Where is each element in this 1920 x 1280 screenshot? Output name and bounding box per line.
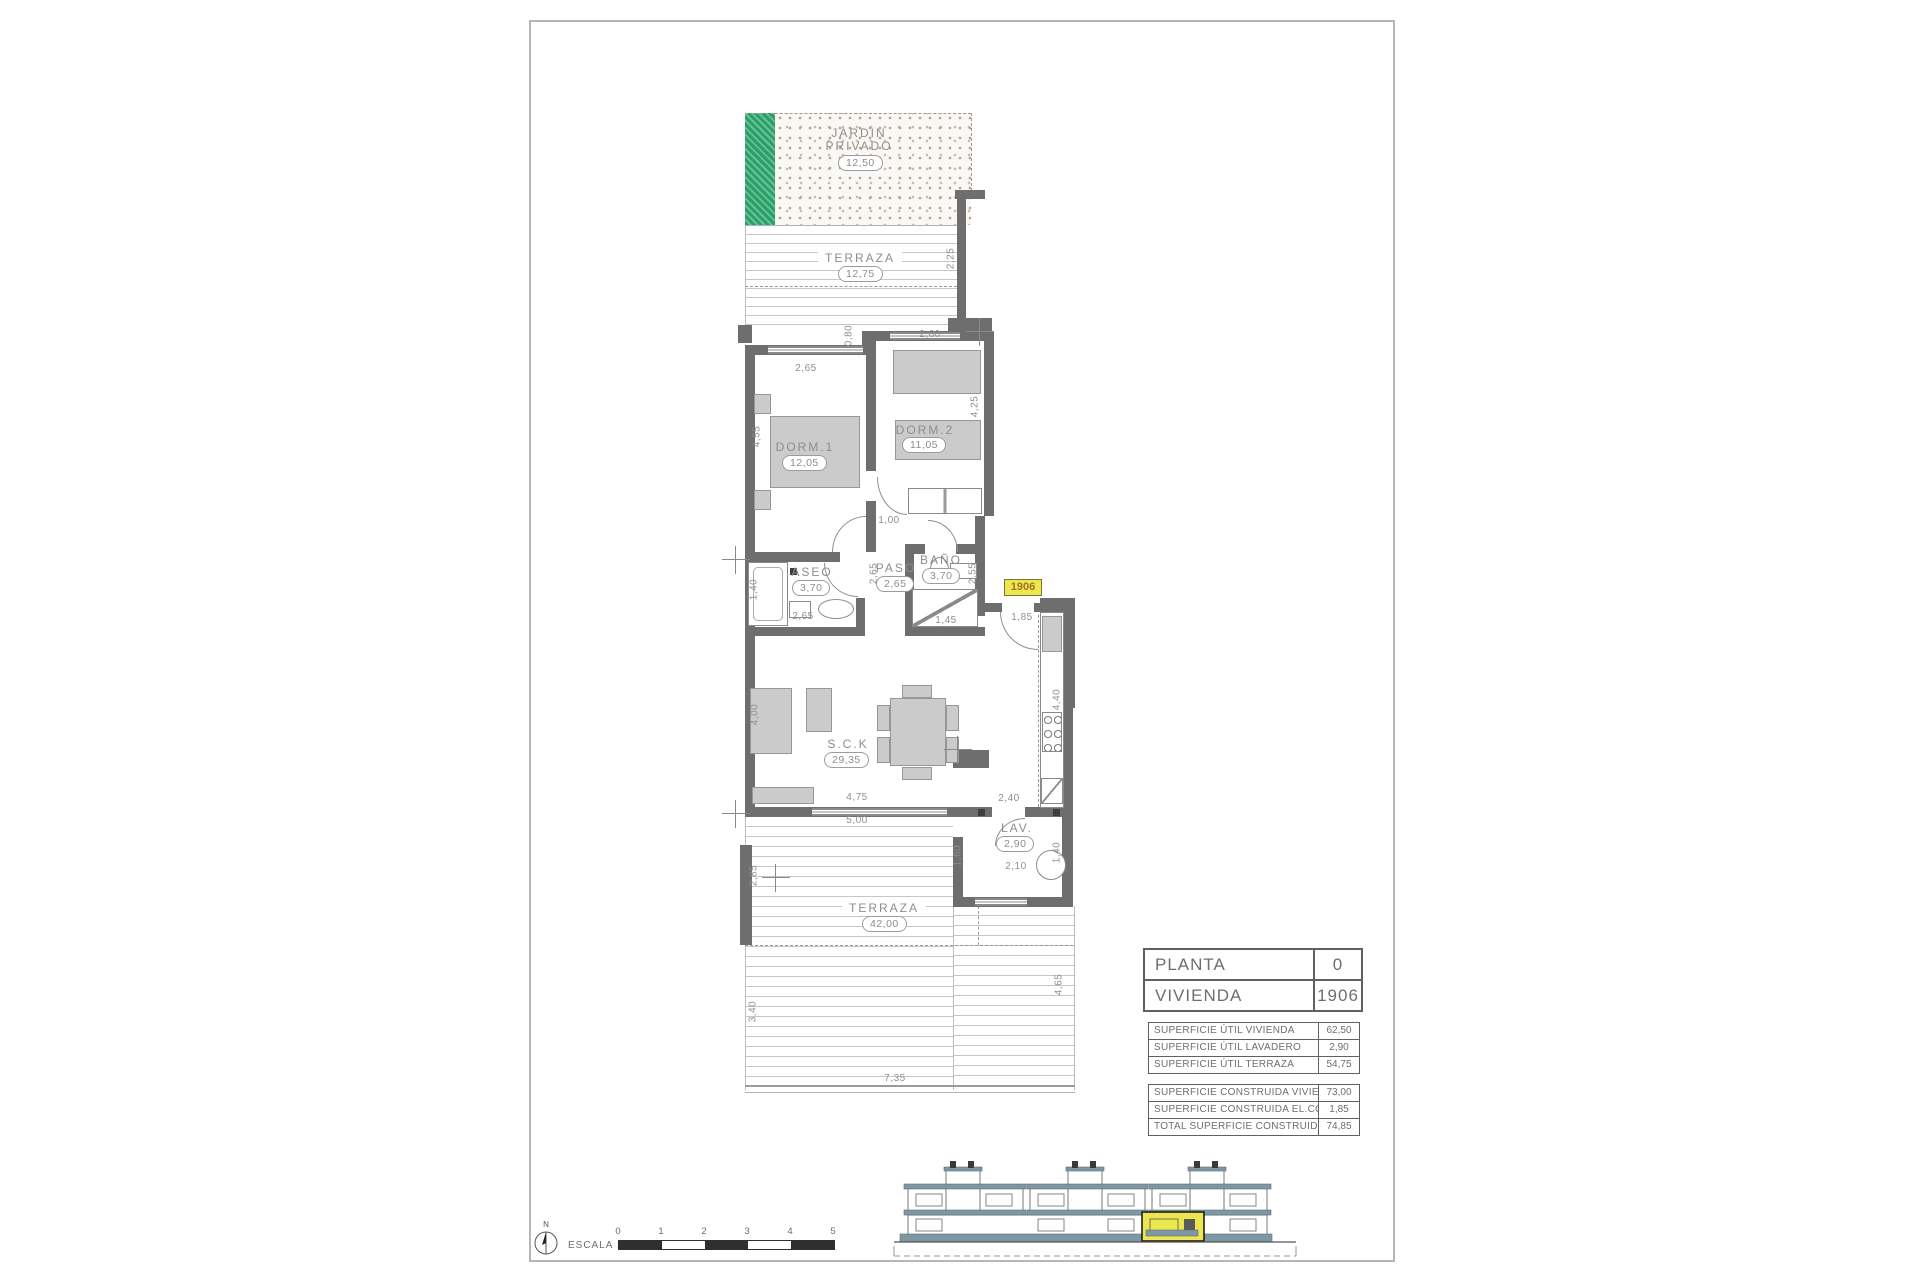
scale-tick: 4 (785, 1226, 795, 1237)
wall-segment (745, 552, 840, 562)
socket-symbol (1053, 809, 1060, 816)
nightstand (754, 490, 771, 510)
scale-segment (748, 1241, 791, 1249)
wall-segment (905, 627, 985, 636)
scale-segment (619, 1241, 662, 1249)
dimension: 2,65 (791, 363, 821, 374)
chair (877, 705, 890, 731)
wall-segment (745, 627, 865, 636)
table-row: SUPERFICIE CONSTRUIDA VIVIENDA 73,00 (1149, 1085, 1359, 1101)
tv-unit (806, 688, 832, 732)
table-cell-label: SUPERFICIE ÚTIL TERRAZA (1149, 1057, 1318, 1073)
dimension: 1,40 (1052, 838, 1063, 868)
table-cell-value: 0 (1313, 950, 1361, 979)
dimension: 3,40 (748, 997, 759, 1027)
garden-boundary-right (971, 113, 972, 191)
section-mark (762, 864, 790, 892)
dimension: 1,00 (874, 515, 904, 526)
chair (946, 705, 959, 731)
dimension: 1,45 (931, 615, 961, 626)
scale-bar (618, 1240, 835, 1250)
table-cell-value: 74,85 (1318, 1119, 1359, 1135)
superficie-construida-table: SUPERFICIE CONSTRUIDA VIVIENDA 73,00 SUP… (1148, 1084, 1360, 1136)
dimension: 4,75 (842, 792, 872, 803)
table-cell-label: SUPERFICIE CONSTRUIDA EL.COMUNES (1149, 1102, 1318, 1118)
bottom-terrace-deck-a (745, 817, 954, 1090)
garden-boundary-top (745, 113, 971, 114)
table-row: VIVIENDA 1906 (1145, 979, 1361, 1010)
table-cell-label: TOTAL SUPERFICIE CONSTRUIDA (1149, 1119, 1318, 1135)
room-label-lav: LAV. (994, 821, 1040, 835)
dimension: 2,65 (869, 559, 880, 589)
chair (902, 685, 932, 698)
sliding-door-window (812, 808, 947, 816)
room-label-aseo: ASEO (785, 565, 839, 579)
table-cell-value: 54,75 (1318, 1057, 1359, 1073)
dimension: 4,65 (1054, 970, 1065, 1000)
table-row: SUPERFICIE ÚTIL LAVADERO 2,90 (1149, 1039, 1359, 1056)
top-terrace-cover-line (745, 286, 957, 287)
unit-number-tag: 1906 (1004, 579, 1042, 596)
room-label-dorm1: DORM.1 (768, 440, 842, 454)
sideboard (752, 787, 814, 804)
dimension: 1,40 (749, 575, 760, 605)
room-label-bano: BAÑO (914, 553, 968, 567)
area-box-aseo: 3,70 (792, 580, 830, 596)
table-cell-value: 73,00 (1318, 1085, 1359, 1101)
chair (902, 767, 932, 780)
area-box-jardin: 12,50 (838, 155, 883, 171)
chair (877, 737, 890, 763)
dimension: 4,55 (752, 422, 763, 452)
socket-symbol (978, 809, 985, 816)
table-cell-value: 1,85 (1318, 1102, 1359, 1118)
area-box-sck: 29,35 (824, 752, 869, 768)
bed-dorm2 (893, 350, 981, 394)
dimension: 4,25 (970, 392, 981, 422)
fridge (1042, 616, 1062, 652)
dimension: 2,10 (1001, 861, 1031, 872)
dimension: 2,65 (788, 611, 818, 622)
pergola-line (745, 945, 1073, 946)
garden-hedge-hatch (745, 113, 775, 225)
north-arrow-icon: N (531, 1218, 561, 1258)
room-label-jardin: JARDIN (822, 126, 896, 140)
scale-tick: 0 (613, 1226, 623, 1237)
wall-segment (738, 325, 752, 343)
scale-tick: 3 (742, 1226, 752, 1237)
building-elevation (890, 1158, 1300, 1262)
table-cell-label: VIVIENDA (1145, 981, 1313, 1010)
dimension: 1,60 (953, 841, 964, 871)
section-mark (722, 546, 750, 574)
table-cell-value: 2,90 (1318, 1040, 1359, 1056)
area-box-terraza-top: 12,75 (838, 266, 883, 282)
room-label-sck: S.C.K (818, 737, 878, 751)
table-cell-label: SUPERFICIE ÚTIL LAVADERO (1149, 1040, 1318, 1056)
area-box-terraza-bottom: 42,00 (862, 916, 907, 932)
section-mark (966, 318, 994, 346)
wall-segment (984, 331, 994, 516)
dimension: 2,25 (946, 244, 957, 274)
kitchen-sink (1041, 778, 1063, 804)
planta-vivienda-table: PLANTA 0 VIVIENDA 1906 (1143, 948, 1363, 1012)
room-label-terraza-top: TERRAZA (818, 251, 902, 265)
highlighted-unit-elevation (1142, 1212, 1204, 1241)
svg-text:N: N (543, 1220, 549, 1229)
floor-plan: JARDIN PRIVADO 12,50 TERRAZA 12,75 DORM.… (0, 0, 1920, 1280)
table-cell-value: 1906 (1313, 981, 1361, 1010)
dimension: 4,00 (750, 700, 761, 730)
dimension: 7,35 (880, 1073, 910, 1084)
area-box-lav: 2,90 (996, 836, 1034, 852)
table-row: TOTAL SUPERFICIE CONSTRUIDA 74,85 (1149, 1118, 1359, 1135)
area-box-paso: 2,65 (876, 576, 914, 592)
room-label-dorm2: DORM.2 (888, 423, 962, 437)
wall-segment (953, 807, 992, 817)
scale-segment (791, 1241, 834, 1249)
dimension: 4,40 (1052, 685, 1063, 715)
dimension: 2,60 (915, 329, 945, 340)
closet-dorm2 (908, 488, 982, 514)
deck-edge-line-1 (745, 1085, 1075, 1087)
table-row: SUPERFICIE ÚTIL VIVIENDA 62,50 (1149, 1023, 1359, 1039)
nightstand (754, 394, 771, 414)
table-cell-label: SUPERFICIE CONSTRUIDA VIVIENDA (1149, 1085, 1318, 1101)
room-label-terraza-bottom: TERRAZA (842, 901, 926, 915)
table-row: PLANTA 0 (1145, 950, 1361, 979)
dining-table (890, 698, 946, 766)
window (975, 898, 1027, 906)
dimension: 5,00 (842, 815, 872, 826)
section-mark (722, 800, 750, 828)
wall-segment (866, 501, 876, 552)
sink-aseo (818, 599, 854, 619)
area-box-dorm2: 11,05 (902, 437, 946, 453)
deck-edge-line-2 (745, 1092, 1075, 1093)
wall-segment (984, 603, 1002, 612)
section-mark (944, 736, 972, 764)
deck-step-line (978, 906, 979, 945)
kitchen-open-edge (1038, 615, 1039, 807)
dimension: 1,85 (1007, 612, 1037, 623)
table-row: SUPERFICIE CONSTRUIDA EL.COMUNES 1,85 (1149, 1101, 1359, 1118)
hob (1042, 712, 1062, 752)
wall-segment (955, 190, 985, 199)
room-label-jardin2: PRIVADO (822, 139, 896, 153)
area-box-dorm1: 12,05 (782, 455, 827, 471)
wall-segment (957, 199, 966, 321)
dimension: 2,55 (968, 559, 979, 589)
scale-tick: 5 (828, 1226, 838, 1237)
dimension: 0,80 (844, 321, 855, 351)
dimension: 2,40 (994, 793, 1024, 804)
wall-segment (866, 341, 876, 471)
table-cell-value: 62,50 (1318, 1023, 1359, 1039)
dimension: 2,85 (749, 861, 760, 891)
table-cell-label: PLANTA (1145, 950, 1313, 979)
table-cell-label: SUPERFICIE ÚTIL VIVIENDA (1149, 1023, 1318, 1039)
scale-segment (705, 1241, 748, 1249)
scale-tick: 2 (699, 1226, 709, 1237)
scale-tick: 1 (656, 1226, 666, 1237)
table-row: SUPERFICIE ÚTIL TERRAZA 54,75 (1149, 1056, 1359, 1073)
superficie-util-table: SUPERFICIE ÚTIL VIVIENDA 62,50 SUPERFICI… (1148, 1022, 1360, 1074)
scale-label: ESCALA : (568, 1240, 620, 1251)
scale-segment (662, 1241, 705, 1249)
area-box-bano: 3,70 (922, 568, 960, 584)
